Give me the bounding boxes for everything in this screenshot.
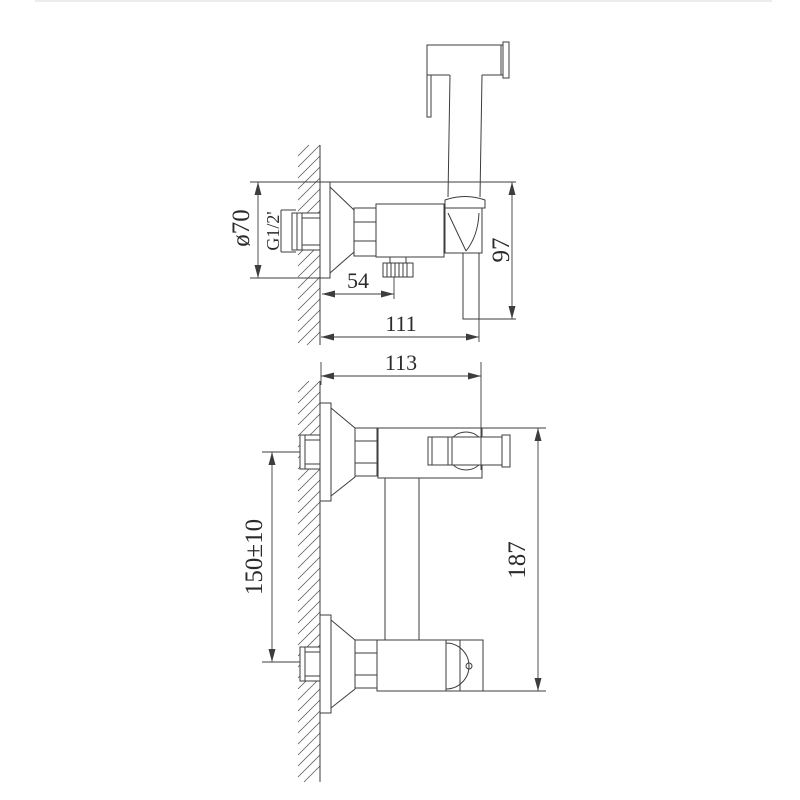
lower-flange-plate [320,615,331,713]
dim-label-width-total: 113 [385,350,417,375]
handle-connector [445,197,485,209]
dim-label-depth-total: 111 [385,311,416,336]
mixer-lever [428,435,510,467]
dim-label-flange-diameter: ø70 [228,209,255,247]
hex-nut-side [354,208,376,256]
dim-label-height-total: 187 [504,541,531,579]
dim-inlet-spacing: 150±10 [241,452,300,662]
upper-inlet-nipple [300,435,320,469]
upper-hex-nut [355,428,377,476]
sprayer-handle [448,62,482,197]
dim-height-total: 187 [482,428,546,691]
technical-drawing-canvas: ø70 G1/2' 54 111 97 [0,0,800,800]
dim-depth-total: 111 [321,311,479,342]
flange-cone-side [330,187,354,273]
flange-plate-side [320,182,330,278]
lower-hex-nut [355,640,377,688]
sprayer-holder-side [445,208,482,253]
dim-label-thread-size: G1/2' [263,211,283,250]
inlet-nipple-side [292,213,320,250]
upper-flange-cone [331,408,355,496]
sprayer-nozzle [427,75,431,117]
front-view: 113 150±10 187 [241,350,546,782]
dim-label-inlet-spacing: 150±10 [241,519,268,595]
connecting-pipe [385,478,419,640]
side-view: ø70 G1/2' 54 111 97 [228,42,516,345]
lower-flange-cone [331,620,355,708]
dim-label-knob-offset: 54 [347,268,369,293]
hose-connector [463,253,479,319]
control-knob [383,257,413,277]
lower-inlet-nipple [300,647,320,681]
dim-label-height-body: 97 [488,238,515,263]
valve-body-side [376,204,444,257]
upper-flange-plate [320,403,331,501]
lower-body-holder [377,640,483,691]
